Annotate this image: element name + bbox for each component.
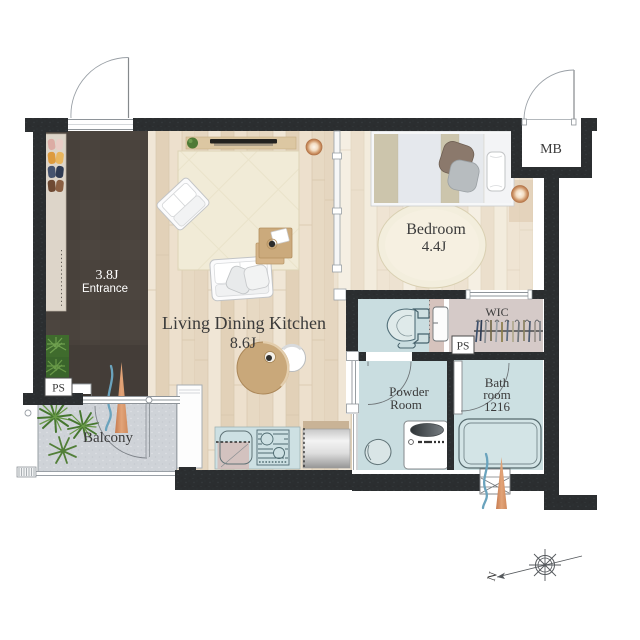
- svg-text:Bedroom: Bedroom: [406, 221, 466, 238]
- svg-text:PS: PS: [457, 341, 470, 353]
- svg-text:Living Dining Kitchen: Living Dining Kitchen: [162, 313, 326, 333]
- svg-text:Room: Room: [390, 397, 422, 412]
- svg-text:PS: PS: [52, 383, 65, 395]
- svg-text:1216: 1216: [484, 399, 511, 414]
- svg-text:8.6J: 8.6J: [230, 335, 256, 352]
- svg-text:MB: MB: [540, 142, 562, 157]
- svg-text:WIC: WIC: [485, 305, 508, 319]
- svg-text:4.4J: 4.4J: [422, 239, 447, 255]
- svg-text:Balcony: Balcony: [83, 430, 133, 446]
- svg-text:Entrance: Entrance: [82, 283, 128, 295]
- svg-text:3.8J: 3.8J: [96, 268, 120, 283]
